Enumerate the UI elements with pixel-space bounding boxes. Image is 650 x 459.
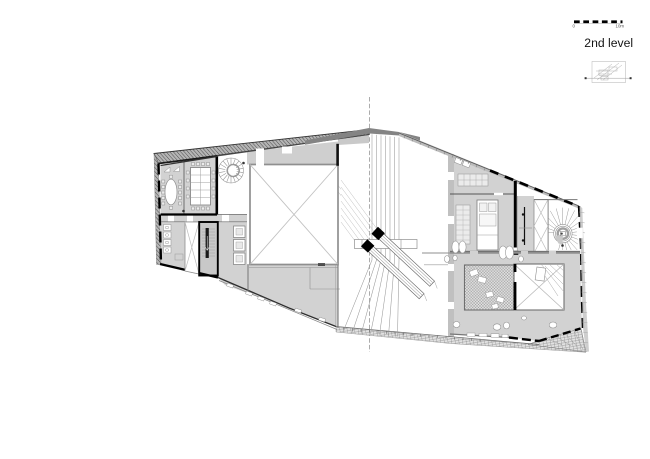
svg-text:2nd level: 2nd level — [584, 36, 633, 50]
svg-text:0: 0 — [573, 24, 576, 29]
svg-text:10m: 10m — [616, 24, 625, 29]
